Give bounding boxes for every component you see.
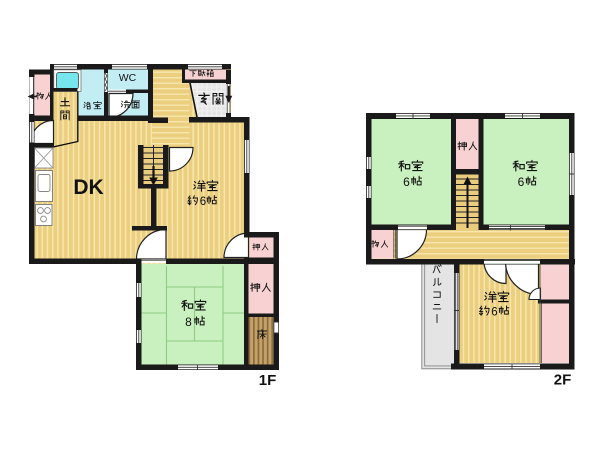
svg-text:6: 6 [200, 196, 206, 208]
svg-text:WC: WC [119, 72, 137, 84]
svg-text:1F: 1F [259, 372, 277, 389]
svg-text:6: 6 [518, 175, 525, 189]
svg-text:2F: 2F [554, 372, 572, 389]
svg-text:DK: DK [73, 176, 103, 199]
svg-text:6: 6 [403, 175, 410, 189]
svg-text:8: 8 [185, 315, 192, 329]
svg-text:6: 6 [491, 307, 497, 319]
